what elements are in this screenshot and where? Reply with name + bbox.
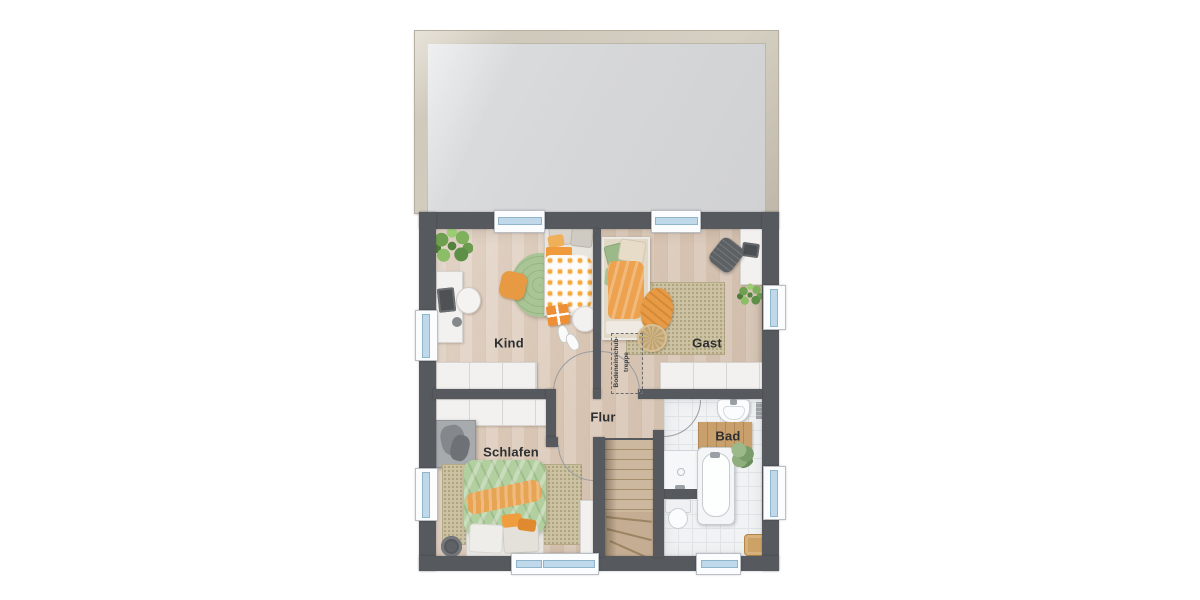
- floor-plan-canvas: Bodeneinschub- treppe: [0, 0, 1200, 600]
- schlafen-bed: [464, 460, 546, 557]
- attic-ladder-label-line1: Bodeneinschub-: [613, 337, 620, 388]
- laptop: [437, 287, 456, 313]
- label-bad: Bad: [715, 429, 740, 444]
- attic-ladder-label: Bodeneinschub- treppe: [612, 334, 640, 390]
- basin-bowl: [723, 406, 745, 420]
- wash-basin: [717, 399, 750, 423]
- window-right-bad: [763, 466, 786, 520]
- window-top-kind: [494, 210, 545, 233]
- waste-bin: [452, 317, 462, 327]
- shower: [661, 450, 700, 493]
- wall-flur-stub: [546, 437, 558, 447]
- tablet: [741, 242, 760, 258]
- shower-drain: [677, 468, 685, 476]
- wall-node-center: [593, 389, 601, 399]
- window-bottom-schlafen: [511, 553, 599, 575]
- roof-surface: [427, 43, 766, 214]
- plant: [431, 225, 473, 267]
- wall-stairwell: [593, 437, 605, 557]
- wall-kind-schlafen: [433, 389, 553, 399]
- plant: [737, 282, 763, 308]
- stairwell-shadow: [605, 440, 617, 557]
- label-gast: Gast: [692, 336, 722, 351]
- label-flur: Flur: [590, 410, 615, 425]
- attic-ladder-label-line2: treppe: [623, 352, 630, 372]
- pillow: [570, 226, 594, 249]
- wall-gast-bad: [638, 389, 762, 399]
- shower-partition-wall: [661, 489, 698, 499]
- kind-bed: [544, 222, 596, 316]
- wall-bad-left: [653, 430, 664, 557]
- label-kind: Kind: [494, 336, 524, 351]
- desk-chair: [456, 287, 481, 314]
- outer-wall-top: [419, 212, 779, 229]
- window-left-schlafen: [415, 468, 438, 521]
- bathtub-inner: [702, 453, 730, 517]
- window-bottom-bad: [696, 553, 741, 575]
- tub-faucet: [710, 452, 720, 458]
- label-schlafen: Schlafen: [483, 445, 539, 460]
- gift-box: [546, 304, 571, 327]
- kind-wardrobe: [436, 362, 537, 391]
- basin-faucet: [730, 399, 737, 405]
- patterned-duvet: [545, 255, 592, 313]
- pillow: [468, 523, 503, 554]
- window-top-gast: [651, 210, 701, 233]
- toilet-bowl: [668, 508, 688, 529]
- stair-opening-edge: [605, 438, 653, 440]
- orange-duvet: [608, 261, 644, 319]
- window-left-kind: [415, 310, 438, 361]
- orange-cushion: [517, 518, 536, 532]
- wall-kind-gast: [593, 229, 601, 399]
- window-right-gast: [763, 285, 786, 330]
- laundry-basket: [441, 536, 462, 557]
